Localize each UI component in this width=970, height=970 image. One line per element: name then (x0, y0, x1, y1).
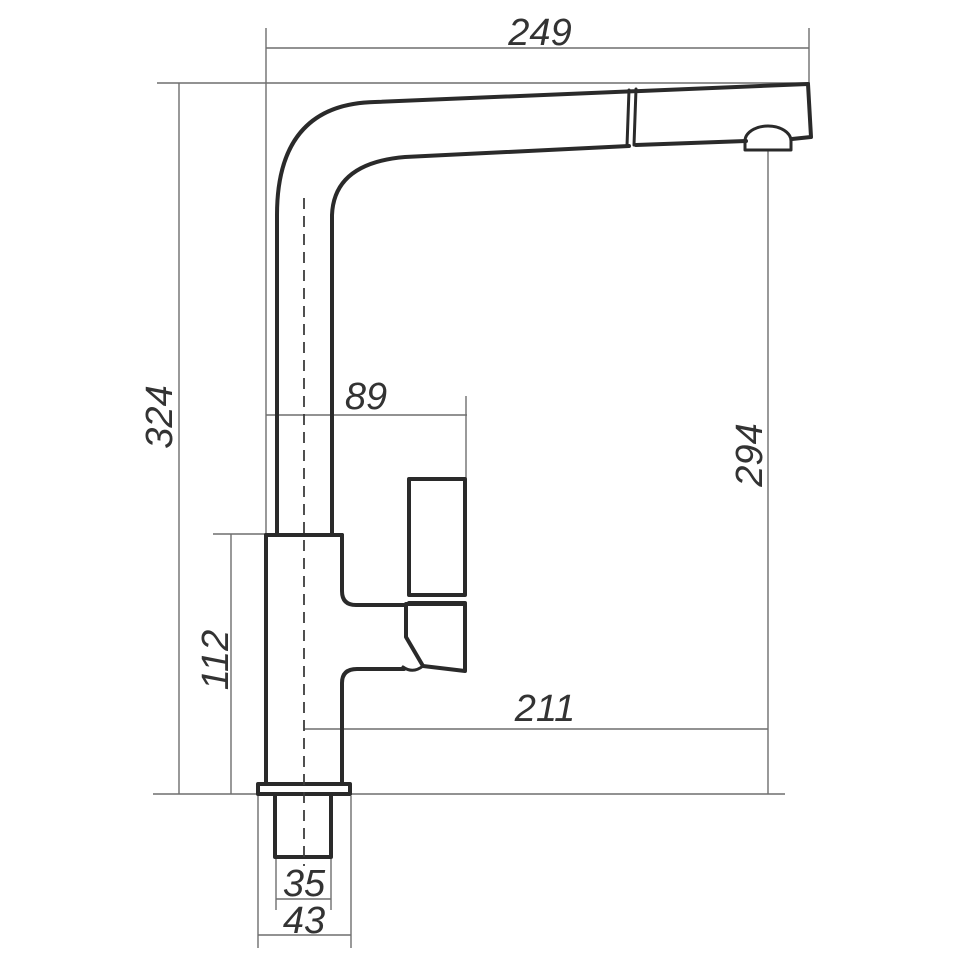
handle-connector-arc (403, 666, 423, 670)
dim-label-shank-width: 35 (283, 863, 326, 905)
handle-connector (406, 604, 465, 671)
dim-label-handle-offset: 89 (345, 376, 387, 418)
drawing-canvas: 249 324 89 294 112 211 35 43 (0, 0, 970, 970)
neck-inner-profile (332, 146, 629, 535)
dim-label-outlet-reach: 211 (514, 688, 576, 730)
threaded-shank (275, 794, 331, 857)
spout-seam-line-1 (627, 90, 629, 146)
faucet-dimension-drawing: 249 324 89 294 112 211 35 43 (0, 0, 970, 970)
body-right-edge-upper-with-boss-top (342, 535, 404, 605)
dim-label-base-width: 43 (283, 900, 325, 942)
dim-label-outlet-height: 294 (729, 423, 771, 487)
aerator-nozzle (745, 126, 791, 150)
handle-lever (409, 479, 465, 595)
spout-underside-segment (636, 141, 746, 145)
body-right-edge-lower-with-boss-bottom (342, 669, 404, 784)
dim-label-spout-reach: 249 (507, 12, 571, 54)
dim-label-body-height: 112 (195, 630, 237, 691)
dimension-lines (153, 28, 810, 948)
dim-label-overall-height: 324 (139, 385, 181, 448)
spout-seam-line-2 (634, 89, 636, 145)
